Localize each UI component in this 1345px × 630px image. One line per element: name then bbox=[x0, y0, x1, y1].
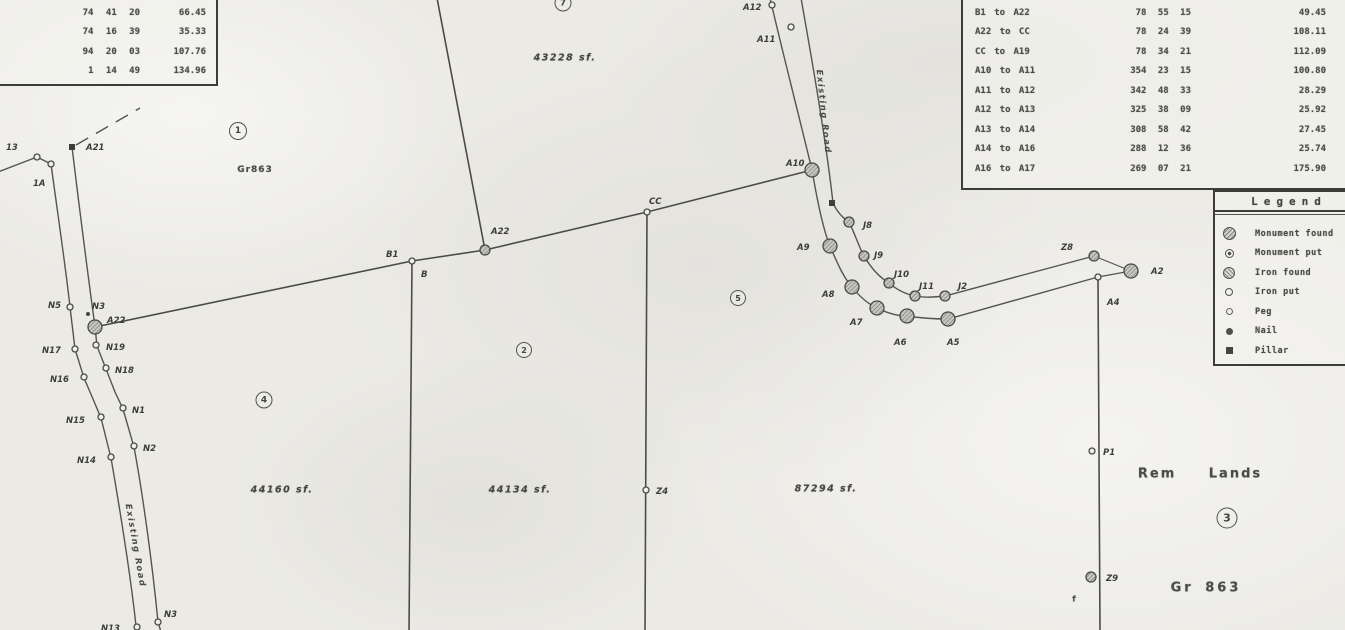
survey-plat-scan: 131AA21N5N3A22N17N19N18N16N1N15N2N14N13N… bbox=[0, 0, 1345, 630]
map-text-label: Gr863 bbox=[237, 165, 273, 175]
area-label: 43228 sf. bbox=[534, 53, 597, 64]
map-text-overlay: 43228 sf.44160 sf.44134 sf.87294 sf.1724… bbox=[0, 0, 1345, 630]
map-text-label: Rem Lands bbox=[1138, 467, 1262, 482]
parcel-number: 3 bbox=[1217, 508, 1238, 529]
area-label: 44160 sf. bbox=[251, 485, 314, 496]
area-label: 44134 sf. bbox=[489, 485, 552, 496]
scan-layer: 131AA21N5N3A22N17N19N18N16N1N15N2N14N13N… bbox=[0, 0, 1345, 630]
parcel-number: 4 bbox=[256, 392, 273, 409]
area-label: 87294 sf. bbox=[795, 484, 858, 495]
parcel-number: 1 bbox=[229, 122, 247, 140]
map-text-label: f bbox=[1072, 595, 1075, 604]
parcel-number: 7 bbox=[555, 0, 572, 12]
map-text-label: Gr 863 bbox=[1171, 581, 1242, 596]
parcel-number: 2 bbox=[516, 342, 532, 358]
parcel-number: 5 bbox=[730, 290, 746, 306]
